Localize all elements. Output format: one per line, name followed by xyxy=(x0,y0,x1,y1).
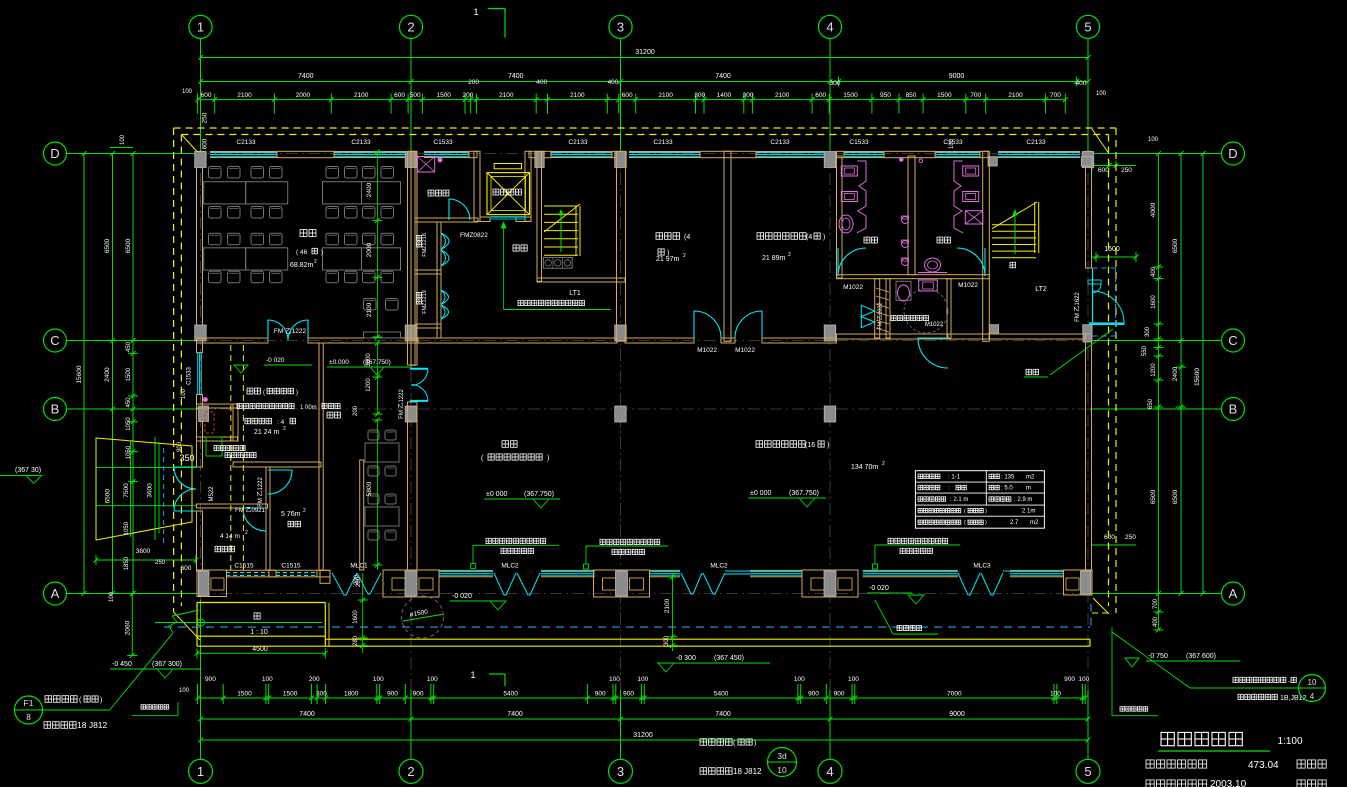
svg-text:FM 乙1222: FM 乙1222 xyxy=(257,477,264,507)
svg-text:15600: 15600 xyxy=(1194,368,1201,386)
svg-text:F1: F1 xyxy=(24,698,34,708)
svg-text:(367.750): (367.750) xyxy=(524,491,554,498)
svg-text:FM 乙0921: FM 乙0921 xyxy=(235,507,265,514)
svg-text:100: 100 xyxy=(1078,676,1089,683)
svg-text:1 : 10: 1 : 10 xyxy=(250,629,268,636)
svg-text:2400: 2400 xyxy=(104,367,111,382)
svg-text:5400: 5400 xyxy=(714,691,729,698)
svg-text:5400: 5400 xyxy=(503,691,518,698)
svg-text:FMZ1218: FMZ1218 xyxy=(422,233,428,257)
svg-text:900: 900 xyxy=(205,676,216,683)
svg-text:300: 300 xyxy=(664,635,670,646)
svg-text:C2133: C2133 xyxy=(236,139,256,146)
svg-text:C2133: C2133 xyxy=(653,139,673,146)
svg-text:MLC1: MLC1 xyxy=(350,563,368,570)
svg-text:1500: 1500 xyxy=(937,92,952,99)
svg-text:: 1-1: : 1-1 xyxy=(948,475,961,481)
svg-text:1200: 1200 xyxy=(366,378,372,392)
svg-text:900: 900 xyxy=(387,691,398,698)
svg-text:C: C xyxy=(50,333,59,348)
svg-text:2100: 2100 xyxy=(664,598,671,613)
svg-text:±0 000: ±0 000 xyxy=(486,491,507,498)
svg-text:MLC3: MLC3 xyxy=(973,563,991,570)
svg-text:6500: 6500 xyxy=(125,238,132,253)
svg-text:M1022: M1022 xyxy=(925,322,944,328)
svg-text:B: B xyxy=(1229,402,1238,417)
svg-text:1: 1 xyxy=(470,670,475,680)
svg-text:2: 2 xyxy=(283,426,286,432)
svg-text:473.04: 473.04 xyxy=(1248,760,1279,771)
svg-text:600: 600 xyxy=(1104,534,1115,541)
svg-text:4: 4 xyxy=(826,764,833,779)
svg-text:134 70m: 134 70m xyxy=(851,464,878,471)
svg-text:-0 020: -0 020 xyxy=(452,593,472,600)
svg-text:650: 650 xyxy=(1148,398,1154,409)
svg-text:D: D xyxy=(1228,146,1237,161)
svg-text:21 97m: 21 97m xyxy=(656,256,680,263)
svg-text:900: 900 xyxy=(834,691,845,698)
svg-text:: 135: : 135 xyxy=(1001,475,1015,481)
svg-text:280: 280 xyxy=(356,576,362,587)
svg-text:FMZ0822: FMZ0822 xyxy=(460,232,488,239)
svg-text:2100: 2100 xyxy=(775,92,790,99)
svg-text:2400: 2400 xyxy=(366,182,373,197)
svg-text:100: 100 xyxy=(848,676,859,683)
svg-text:FM 乙1022: FM 乙1022 xyxy=(877,302,884,329)
svg-text:3600: 3600 xyxy=(146,483,153,498)
svg-text:2000: 2000 xyxy=(296,92,311,99)
svg-text:1500: 1500 xyxy=(1104,246,1120,253)
svg-text:C1533: C1533 xyxy=(433,139,453,146)
svg-text:5800: 5800 xyxy=(366,481,373,496)
svg-text:18 J812: 18 J812 xyxy=(733,767,762,776)
svg-text:m2: m2 xyxy=(1026,475,1035,481)
svg-text:600: 600 xyxy=(1098,167,1109,174)
svg-text:600: 600 xyxy=(622,92,633,99)
svg-text:2.7: 2.7 xyxy=(1010,520,1019,526)
svg-text:m: m xyxy=(1026,486,1031,492)
svg-text:D: D xyxy=(50,146,59,161)
svg-text:7400: 7400 xyxy=(715,711,731,718)
svg-text:1400: 1400 xyxy=(717,92,732,99)
svg-text:LT2: LT2 xyxy=(1035,286,1047,293)
svg-text:2: 2 xyxy=(407,20,414,35)
svg-text:FM 乙1222: FM 乙1222 xyxy=(398,389,405,419)
svg-text:M1022: M1022 xyxy=(735,347,755,354)
svg-text:400: 400 xyxy=(1076,80,1087,87)
svg-text:4: 4 xyxy=(826,20,833,35)
svg-text:6500: 6500 xyxy=(1172,238,1179,253)
svg-text:100: 100 xyxy=(120,134,126,145)
svg-text:2: 2 xyxy=(314,259,317,265)
svg-text:3: 3 xyxy=(617,764,624,779)
svg-text:21 24 m: 21 24 m xyxy=(254,429,279,436)
svg-text:C1533: C1533 xyxy=(849,139,869,146)
svg-text:600: 600 xyxy=(181,565,192,572)
svg-text:200: 200 xyxy=(468,79,479,86)
svg-text:1050: 1050 xyxy=(126,417,132,431)
svg-text:(367 300): (367 300) xyxy=(152,661,182,668)
svg-text:100: 100 xyxy=(427,676,438,683)
svg-text:300: 300 xyxy=(316,691,327,698)
svg-text:1200: 1200 xyxy=(1151,363,1157,377)
svg-text:15600: 15600 xyxy=(76,365,83,383)
svg-text:250: 250 xyxy=(155,560,166,566)
svg-text:31200: 31200 xyxy=(633,732,653,739)
svg-text:: 2.9 m: : 2.9 m xyxy=(1014,497,1032,503)
svg-text:9000: 9000 xyxy=(949,73,965,80)
svg-text:C2133: C2133 xyxy=(351,139,371,146)
svg-text:4 14 m: 4 14 m xyxy=(220,533,240,540)
svg-text:FM 乙1622: FM 乙1622 xyxy=(1074,292,1081,322)
svg-text:C1515: C1515 xyxy=(234,563,254,570)
svg-text:): ) xyxy=(100,697,102,704)
svg-text:300: 300 xyxy=(1145,326,1151,337)
svg-text:(4: (4 xyxy=(806,234,812,241)
svg-text:±0.000: ±0.000 xyxy=(329,359,349,366)
svg-text:1800: 1800 xyxy=(344,691,359,698)
svg-text:10: 10 xyxy=(777,765,787,775)
svg-text:2100: 2100 xyxy=(499,92,514,99)
svg-text:A: A xyxy=(1229,586,1238,601)
svg-text:7400: 7400 xyxy=(507,711,523,718)
svg-text:100: 100 xyxy=(1050,691,1061,698)
svg-text:900: 900 xyxy=(808,691,819,698)
svg-text:1B,JB12: 1B,JB12 xyxy=(1280,695,1307,702)
svg-text:6500: 6500 xyxy=(105,489,112,504)
svg-text:C1533: C1533 xyxy=(187,367,193,385)
svg-text:100: 100 xyxy=(1148,137,1159,143)
svg-text:100: 100 xyxy=(262,676,273,683)
svg-text:): ) xyxy=(321,249,323,256)
svg-text:M1022: M1022 xyxy=(697,347,717,354)
svg-text:6500: 6500 xyxy=(104,238,111,253)
svg-text:5 76m: 5 76m xyxy=(281,511,301,518)
svg-text:(367 450): (367 450) xyxy=(714,655,744,662)
svg-text:-0 020: -0 020 xyxy=(266,357,285,364)
svg-text:68.82m: 68.82m xyxy=(290,262,314,269)
svg-text:2: 2 xyxy=(882,461,885,467)
svg-text:1850: 1850 xyxy=(124,556,130,570)
svg-text:2: 2 xyxy=(407,764,414,779)
svg-text:550: 550 xyxy=(1142,345,1148,356)
svg-text:2100: 2100 xyxy=(1008,92,1023,99)
svg-text:700: 700 xyxy=(1050,92,1061,99)
svg-text:7400: 7400 xyxy=(508,73,524,80)
svg-text:1: 1 xyxy=(197,20,204,35)
svg-text:250: 250 xyxy=(202,112,209,123)
svg-text:9000: 9000 xyxy=(949,711,965,718)
svg-text:2100: 2100 xyxy=(570,92,585,99)
svg-text:-: - xyxy=(1288,679,1290,685)
svg-text:6500: 6500 xyxy=(1150,489,1157,504)
svg-text:2000: 2000 xyxy=(366,242,373,257)
svg-text:2 1m: 2 1m xyxy=(1022,509,1035,515)
svg-text:100: 100 xyxy=(373,676,384,683)
svg-text:700: 700 xyxy=(970,92,981,99)
svg-text:5: 5 xyxy=(1084,764,1091,779)
svg-text:300: 300 xyxy=(830,80,841,87)
svg-text:1600: 1600 xyxy=(1151,295,1157,309)
svg-text:1500: 1500 xyxy=(283,691,298,698)
svg-text:1050: 1050 xyxy=(124,521,130,535)
svg-text:: 5.0: : 5.0 xyxy=(1001,486,1013,492)
svg-text:(: ( xyxy=(263,390,265,396)
svg-text:1: 1 xyxy=(197,764,204,779)
svg-text:100: 100 xyxy=(109,591,115,602)
svg-text:(367 30): (367 30) xyxy=(15,467,41,474)
svg-text:18 J812: 18 J812 xyxy=(77,720,108,730)
svg-text:900: 900 xyxy=(623,691,634,698)
svg-text:1600: 1600 xyxy=(353,610,359,624)
svg-text:±0 000: ±0 000 xyxy=(750,490,771,497)
svg-text:1:100: 1:100 xyxy=(1277,736,1302,747)
svg-text:-0 450: -0 450 xyxy=(112,661,132,668)
svg-text:8: 8 xyxy=(26,712,31,722)
svg-text:): ) xyxy=(985,520,987,526)
svg-text:C2133: C2133 xyxy=(1026,139,1046,146)
svg-text:500: 500 xyxy=(410,92,421,99)
svg-text:200: 200 xyxy=(353,405,359,416)
svg-text:C1533: C1533 xyxy=(943,139,963,146)
svg-text:3: 3 xyxy=(617,20,624,35)
svg-text:4500: 4500 xyxy=(252,646,268,653)
svg-text:2: 2 xyxy=(245,530,248,536)
svg-text:(367 600): (367 600) xyxy=(1186,653,1216,660)
svg-text:2: 2 xyxy=(303,508,306,514)
svg-text:600: 600 xyxy=(815,92,826,99)
svg-text:): ) xyxy=(547,455,549,462)
svg-text:200: 200 xyxy=(462,92,473,99)
svg-text:-0 020: -0 020 xyxy=(869,585,889,592)
svg-text:4000: 4000 xyxy=(1150,202,1157,217)
svg-text:FM 乙1222: FM 乙1222 xyxy=(274,327,307,335)
svg-text:280: 280 xyxy=(353,635,359,646)
svg-text:900: 900 xyxy=(1064,676,1075,683)
svg-text:4: 4 xyxy=(1310,692,1315,701)
svg-text:100: 100 xyxy=(1096,91,1107,97)
svg-text:): ) xyxy=(754,740,756,747)
svg-text:1 00m: 1 00m xyxy=(300,405,317,411)
svg-text:200: 200 xyxy=(309,676,320,683)
svg-text:): ) xyxy=(296,390,298,396)
svg-text:250: 250 xyxy=(1121,167,1132,174)
svg-text:2100: 2100 xyxy=(237,92,252,99)
svg-text:600: 600 xyxy=(202,138,209,149)
svg-text:100: 100 xyxy=(609,676,620,683)
svg-text:): ) xyxy=(823,234,825,241)
svg-text:1500: 1500 xyxy=(843,92,858,99)
svg-text:5: 5 xyxy=(1084,20,1091,35)
svg-text:(: ( xyxy=(964,520,966,526)
svg-text:1: 1 xyxy=(473,7,478,17)
svg-text:450: 450 xyxy=(126,397,132,408)
svg-text:100: 100 xyxy=(179,688,190,694)
svg-text:400: 400 xyxy=(536,79,547,86)
svg-text:2400: 2400 xyxy=(1172,366,1179,381)
svg-text:( 46: ( 46 xyxy=(296,249,308,256)
svg-text:M1022: M1022 xyxy=(843,284,863,291)
svg-text:7000: 7000 xyxy=(947,691,962,698)
svg-text:7500: 7500 xyxy=(123,483,130,498)
svg-text:FMZ1219: FMZ1219 xyxy=(422,290,428,314)
svg-text:): ) xyxy=(985,509,987,515)
svg-text:900: 900 xyxy=(595,691,606,698)
svg-text:950: 950 xyxy=(880,92,891,99)
svg-text:31200: 31200 xyxy=(635,49,655,56)
svg-text:: 4: : 4 xyxy=(277,419,285,426)
svg-text:MLC2: MLC2 xyxy=(710,563,728,570)
svg-text:1050: 1050 xyxy=(126,445,132,459)
svg-text:300: 300 xyxy=(694,92,705,99)
svg-text:C1515: C1515 xyxy=(281,563,301,570)
svg-text:C: C xyxy=(1228,333,1237,348)
svg-text:2100: 2100 xyxy=(366,302,373,317)
svg-text:400: 400 xyxy=(608,79,619,86)
svg-text:6500: 6500 xyxy=(1172,489,1179,504)
svg-text:7400: 7400 xyxy=(298,73,314,80)
svg-text:(367.750): (367.750) xyxy=(789,490,819,497)
svg-text:1500: 1500 xyxy=(126,367,132,381)
svg-text:600: 600 xyxy=(201,92,212,99)
svg-text:A: A xyxy=(51,586,60,601)
svg-text:10: 10 xyxy=(1308,678,1317,687)
svg-text:-0 750: -0 750 xyxy=(1148,653,1168,660)
svg-text:2: 2 xyxy=(683,253,686,259)
svg-text:2100: 2100 xyxy=(354,92,369,99)
svg-text:): ) xyxy=(827,442,829,449)
svg-text:3600: 3600 xyxy=(136,548,151,555)
svg-text:100: 100 xyxy=(637,676,648,683)
svg-text:C2133: C2133 xyxy=(568,139,588,146)
svg-text:M522: M522 xyxy=(209,486,215,502)
svg-text:1500: 1500 xyxy=(237,691,252,698)
svg-text:1500: 1500 xyxy=(436,92,451,99)
svg-text:250: 250 xyxy=(1125,534,1136,541)
svg-text:21 89m: 21 89m xyxy=(762,255,786,262)
svg-text:600: 600 xyxy=(394,92,405,99)
svg-text:(367.750): (367.750) xyxy=(363,359,391,366)
svg-text:100: 100 xyxy=(794,676,805,683)
svg-text:M1022: M1022 xyxy=(958,282,978,289)
svg-text:2: 2 xyxy=(788,252,791,258)
svg-text:C2133: C2133 xyxy=(770,139,790,146)
svg-text:m2: m2 xyxy=(1030,520,1039,526)
svg-text:2100: 2100 xyxy=(658,92,673,99)
svg-text:-0 300: -0 300 xyxy=(676,655,696,662)
svg-text:B: B xyxy=(51,402,60,417)
svg-text:LT1: LT1 xyxy=(569,290,581,297)
svg-text:MLC2: MLC2 xyxy=(501,563,519,570)
svg-text:: 2.1 m: : 2.1 m xyxy=(950,497,968,503)
svg-text:850: 850 xyxy=(906,92,917,99)
svg-text:(16: (16 xyxy=(805,442,815,449)
svg-text:300: 300 xyxy=(743,92,754,99)
svg-text:450: 450 xyxy=(126,341,132,352)
svg-text:3d: 3d xyxy=(777,751,787,761)
svg-text:(4: (4 xyxy=(684,234,690,241)
svg-text:7400: 7400 xyxy=(299,711,315,718)
svg-text:(: ( xyxy=(964,509,966,515)
svg-text:100: 100 xyxy=(182,89,193,95)
svg-text:900: 900 xyxy=(413,691,424,698)
svg-text:400: 400 xyxy=(1151,266,1157,277)
svg-text:2003.10: 2003.10 xyxy=(1210,779,1247,787)
svg-text:2060: 2060 xyxy=(125,620,132,635)
svg-text:7400: 7400 xyxy=(715,73,731,80)
svg-text:900: 900 xyxy=(177,441,183,452)
